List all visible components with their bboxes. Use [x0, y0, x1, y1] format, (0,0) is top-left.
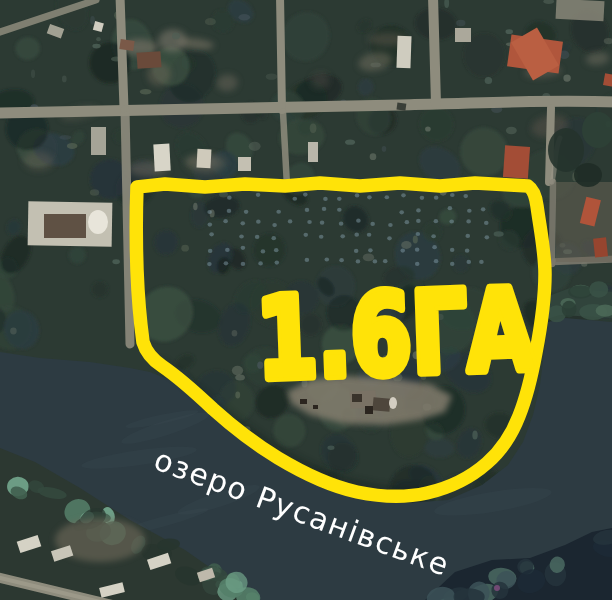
satellite-map: 1.6ГА озеро Русанівське	[0, 0, 612, 600]
area-size-label: 1.6ГА	[254, 265, 537, 405]
map-canvas: 1.6ГА озеро Русанівське	[0, 0, 612, 600]
